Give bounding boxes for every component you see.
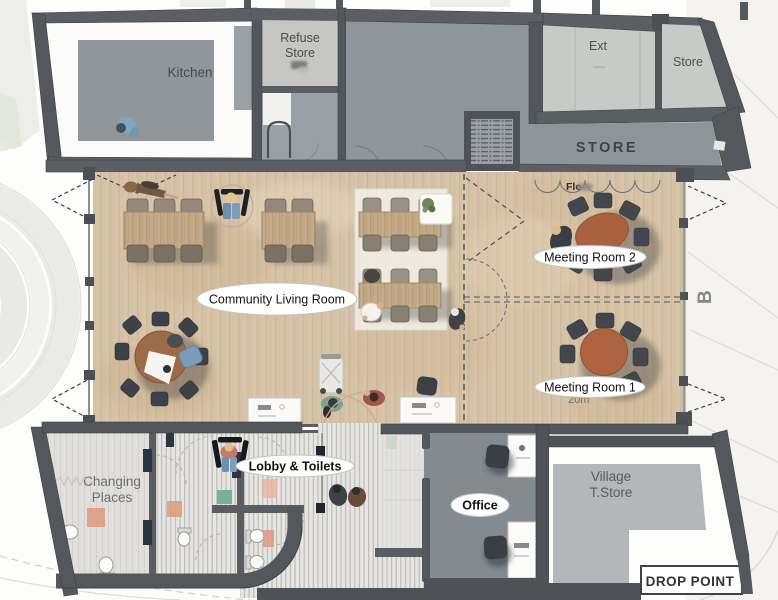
svg-text:Store: Store	[673, 55, 703, 69]
svg-text:Meeting Room 1: Meeting Room 1	[544, 381, 636, 395]
svg-text:DROP POINT: DROP POINT	[646, 574, 735, 589]
svg-text:Office: Office	[462, 499, 497, 513]
svg-text:Meeting Room 2: Meeting Room 2	[544, 251, 636, 265]
svg-text:Places: Places	[92, 490, 133, 505]
svg-text:Village: Village	[591, 469, 631, 484]
svg-text:Community Living Room: Community Living Room	[209, 293, 345, 307]
svg-text:Store: Store	[285, 46, 315, 60]
svg-text:T.Store: T.Store	[590, 485, 633, 500]
svg-text:Ext: Ext	[589, 39, 608, 53]
svg-text:Refuse: Refuse	[280, 31, 320, 45]
svg-text:B: B	[695, 290, 716, 304]
svg-text:Kitchen: Kitchen	[167, 65, 212, 80]
svg-text:Lobby & Toilets: Lobby & Toilets	[249, 460, 342, 474]
svg-text:STORE: STORE	[576, 140, 638, 156]
